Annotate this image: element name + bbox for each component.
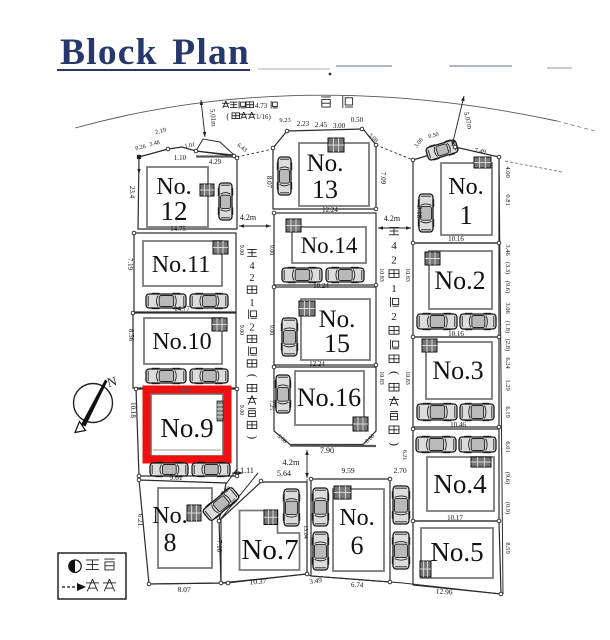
svg-text:No.16: No.16 bbox=[297, 383, 361, 412]
svg-text:No.7: No.7 bbox=[241, 534, 298, 566]
svg-text:1: 1 bbox=[249, 298, 254, 309]
svg-text:7.25: 7.25 bbox=[268, 400, 274, 411]
svg-text:4: 4 bbox=[391, 240, 397, 252]
svg-text:(: ( bbox=[226, 112, 229, 121]
svg-text:8: 8 bbox=[164, 528, 177, 557]
svg-text:10.83: 10.83 bbox=[378, 268, 384, 282]
svg-text:8.07: 8.07 bbox=[265, 176, 273, 189]
svg-text:1: 1 bbox=[391, 283, 397, 295]
svg-text:No.: No. bbox=[307, 150, 344, 177]
svg-text:7.10: 7.10 bbox=[215, 540, 223, 553]
svg-text:10.24: 10.24 bbox=[313, 282, 329, 290]
svg-text:2: 2 bbox=[249, 322, 254, 333]
svg-text:No.: No. bbox=[448, 174, 483, 200]
svg-text:2: 2 bbox=[249, 273, 254, 284]
svg-text:1: 1 bbox=[459, 200, 473, 230]
svg-text:0.81: 0.81 bbox=[504, 194, 511, 205]
svg-text:6.24: 6.24 bbox=[504, 357, 511, 369]
svg-text:9.00: 9.00 bbox=[268, 325, 274, 336]
svg-text:9.61: 9.61 bbox=[169, 473, 182, 482]
svg-text:(9.6): (9.6) bbox=[504, 281, 511, 293]
svg-text:12.96: 12.96 bbox=[435, 586, 453, 596]
svg-text:4: 4 bbox=[249, 261, 255, 272]
svg-text:2.70: 2.70 bbox=[393, 466, 406, 475]
svg-text:No.5: No.5 bbox=[430, 537, 483, 567]
svg-text:10.83: 10.83 bbox=[404, 268, 410, 282]
svg-text:6.74: 6.74 bbox=[351, 581, 364, 590]
svg-text:No.: No. bbox=[339, 505, 374, 531]
svg-text:10.83: 10.83 bbox=[404, 371, 410, 385]
svg-text:(: ( bbox=[246, 374, 258, 378]
svg-text:No.3: No.3 bbox=[432, 356, 483, 385]
svg-text:Block Plan: Block Plan bbox=[60, 32, 250, 73]
svg-text:4.00: 4.00 bbox=[504, 166, 511, 177]
svg-text:6: 6 bbox=[351, 531, 364, 560]
svg-text:1.10: 1.10 bbox=[174, 154, 187, 162]
svg-text:10.83: 10.83 bbox=[378, 371, 384, 385]
svg-text:9.18: 9.18 bbox=[415, 206, 423, 219]
svg-text:1.29: 1.29 bbox=[504, 379, 511, 390]
svg-text:2: 2 bbox=[391, 311, 397, 323]
svg-text:9.00: 9.00 bbox=[238, 325, 244, 336]
svg-text:13.04: 13.04 bbox=[302, 525, 308, 539]
svg-text:13: 13 bbox=[312, 175, 338, 204]
svg-text:): ) bbox=[246, 435, 258, 439]
svg-text:7.19: 7.19 bbox=[126, 258, 134, 271]
svg-text:(0.9): (0.9) bbox=[504, 502, 511, 514]
svg-text:No.4: No.4 bbox=[433, 469, 487, 499]
svg-text:8.59: 8.59 bbox=[504, 542, 511, 553]
svg-text:No.14: No.14 bbox=[301, 233, 358, 258]
svg-text:6.19: 6.19 bbox=[504, 406, 511, 417]
svg-text:2.23: 2.23 bbox=[297, 120, 310, 128]
svg-text:10.16: 10.16 bbox=[448, 235, 464, 243]
svg-text:(9.6): (9.6) bbox=[504, 472, 511, 484]
svg-text:9.59: 9.59 bbox=[341, 466, 354, 475]
svg-text:4.2m: 4.2m bbox=[282, 457, 300, 467]
svg-text:No.2: No.2 bbox=[434, 266, 485, 295]
svg-text:9.00: 9.00 bbox=[238, 405, 244, 416]
svg-text:4.73: 4.73 bbox=[255, 102, 268, 110]
svg-text:3.06: 3.06 bbox=[504, 302, 511, 314]
svg-text:7.09: 7.09 bbox=[379, 172, 387, 185]
svg-text:6.21: 6.21 bbox=[401, 450, 407, 461]
svg-text:2: 2 bbox=[391, 254, 397, 266]
svg-text:15: 15 bbox=[324, 329, 350, 358]
svg-text:9.23: 9.23 bbox=[279, 117, 290, 124]
svg-text:0.50: 0.50 bbox=[351, 116, 364, 124]
svg-text:9.00: 9.00 bbox=[268, 245, 274, 256]
svg-text:No.: No. bbox=[152, 503, 187, 529]
svg-text:1.11: 1.11 bbox=[240, 466, 254, 475]
svg-text:6.01: 6.01 bbox=[504, 441, 511, 452]
svg-text:6.21: 6.21 bbox=[136, 514, 144, 527]
svg-text:23.4: 23.4 bbox=[128, 186, 136, 199]
svg-text:5.01m: 5.01m bbox=[208, 109, 218, 128]
svg-text:12.24: 12.24 bbox=[309, 360, 325, 368]
svg-text:(9.95): (9.95) bbox=[180, 387, 195, 394]
svg-text:14.75: 14.75 bbox=[170, 225, 186, 233]
svg-text:10.16: 10.16 bbox=[448, 330, 464, 338]
svg-text:4.2m: 4.2m bbox=[240, 213, 257, 222]
svg-text:10.18: 10.18 bbox=[129, 402, 137, 418]
svg-text:No.9: No.9 bbox=[160, 413, 213, 443]
svg-text:10.46: 10.46 bbox=[450, 421, 466, 429]
svg-text:(2.8): (2.8) bbox=[504, 339, 511, 351]
svg-text:12: 12 bbox=[161, 196, 188, 226]
svg-text:14.77: 14.77 bbox=[174, 305, 190, 313]
svg-text:10.37: 10.37 bbox=[249, 577, 267, 587]
svg-text:12.24: 12.24 bbox=[322, 206, 338, 214]
svg-text:2.45: 2.45 bbox=[315, 121, 328, 129]
svg-text:10.17: 10.17 bbox=[447, 514, 463, 522]
svg-text:3.46: 3.46 bbox=[504, 244, 511, 256]
svg-text:7.90: 7.90 bbox=[320, 446, 334, 455]
svg-text:(1.8): (1.8) bbox=[504, 321, 511, 333]
svg-text:8.56: 8.56 bbox=[127, 329, 135, 342]
svg-text:No.10: No.10 bbox=[152, 329, 211, 355]
svg-text:(: ( bbox=[388, 371, 402, 375]
svg-text:4.29: 4.29 bbox=[209, 158, 222, 166]
svg-text:No.11: No.11 bbox=[152, 252, 210, 278]
svg-text:4.2m: 4.2m bbox=[384, 214, 401, 223]
svg-text:1/16): 1/16) bbox=[256, 113, 271, 121]
svg-text:5.64: 5.64 bbox=[277, 469, 291, 478]
svg-text:(3.3): (3.3) bbox=[504, 262, 511, 274]
svg-text:8.07: 8.07 bbox=[177, 585, 191, 594]
svg-text:9.00: 9.00 bbox=[238, 245, 244, 256]
svg-text:): ) bbox=[388, 442, 402, 446]
svg-text:3.00: 3.00 bbox=[333, 122, 346, 130]
